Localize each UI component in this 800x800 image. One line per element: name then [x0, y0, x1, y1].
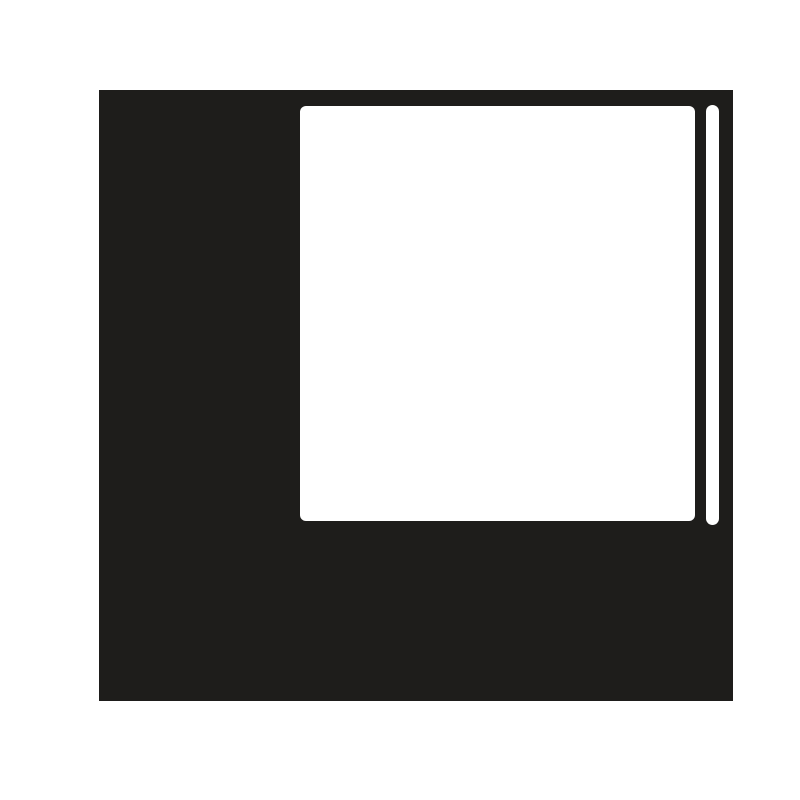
content-area: [300, 106, 695, 521]
page-canvas: [0, 0, 800, 800]
scrollbar-thumb-icon[interactable]: [706, 105, 719, 525]
